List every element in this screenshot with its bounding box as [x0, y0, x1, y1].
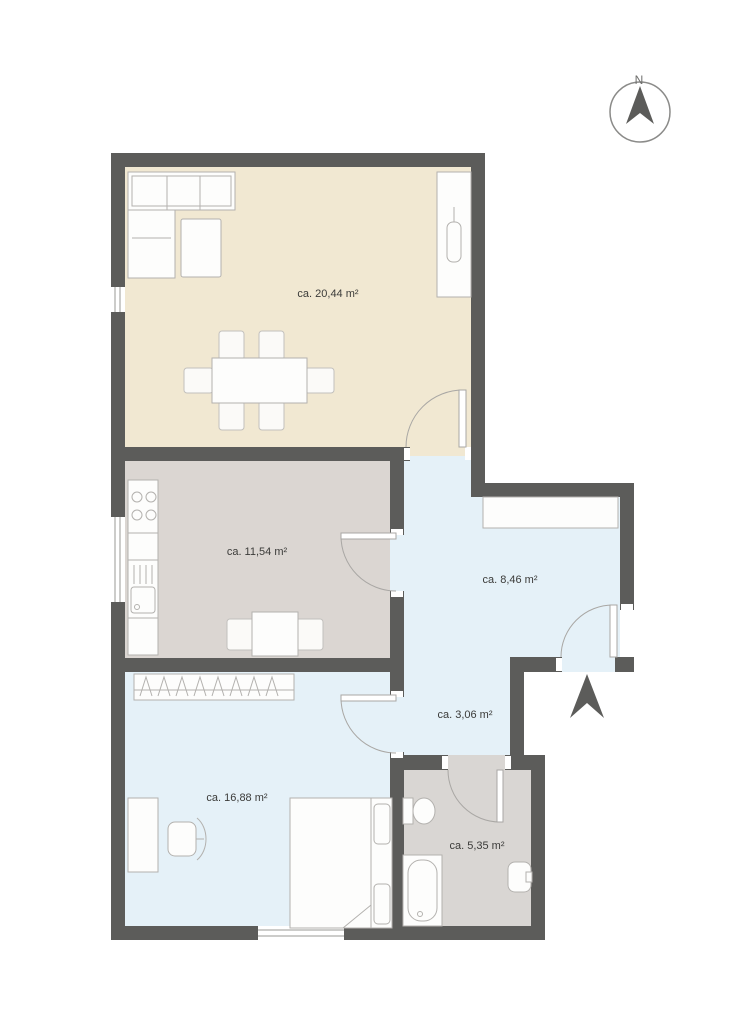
kitchen-label: ca. 11,54 m² [227, 546, 288, 558]
kitchen-chair [227, 619, 254, 650]
dining-chair [259, 331, 284, 360]
bathroom-label: ca. 5,35 m² [449, 840, 504, 852]
double-bed [290, 798, 392, 928]
hallway-label: ca. 8,46 m² [482, 574, 537, 586]
kitchen-window [111, 517, 125, 602]
corridor-label: ca. 3,06 m² [437, 709, 492, 721]
pillow [374, 884, 390, 924]
coffee-table [181, 219, 221, 277]
dining-chair [184, 368, 213, 393]
desk [128, 798, 158, 872]
entrance-threshold [562, 657, 615, 672]
hallway-wardrobe [483, 497, 618, 528]
dining-chair [219, 401, 244, 430]
radiator [437, 172, 471, 297]
living-room-label: ca. 20,44 m² [297, 288, 358, 300]
bathtub [403, 855, 442, 926]
living-room-window [111, 287, 125, 312]
living-door-threshold [410, 447, 465, 456]
dining-chair [259, 401, 284, 430]
floor-plan: ca. 20,44 m² ca. 11,54 m² ca. 8,46 m² ca… [0, 0, 735, 1024]
bedroom-label: ca. 16,88 m² [206, 792, 267, 804]
compass-north-label: N [635, 73, 644, 87]
bedroom-door-threshold [390, 697, 404, 752]
entrance-arrow-icon [570, 674, 604, 718]
dining-chair [219, 331, 244, 360]
hallway-floor-upper [404, 456, 471, 497]
dining-chair [305, 368, 334, 393]
kitchen-table [252, 612, 298, 656]
wardrobe [134, 674, 294, 700]
kitchen-chair [296, 619, 323, 650]
compass-north-icon: N [610, 73, 670, 142]
kitchen-table-set [227, 612, 323, 656]
pillow [374, 804, 390, 844]
bathroom-door-threshold [448, 755, 505, 770]
kitchen-counter [128, 480, 158, 655]
kitchen-door-threshold [390, 535, 404, 591]
bathroom-sink [508, 862, 532, 892]
dining-table [212, 358, 307, 403]
toilet [403, 798, 435, 824]
floor-plan-page: ca. 20,44 m² ca. 11,54 m² ca. 8,46 m² ca… [0, 0, 735, 1024]
